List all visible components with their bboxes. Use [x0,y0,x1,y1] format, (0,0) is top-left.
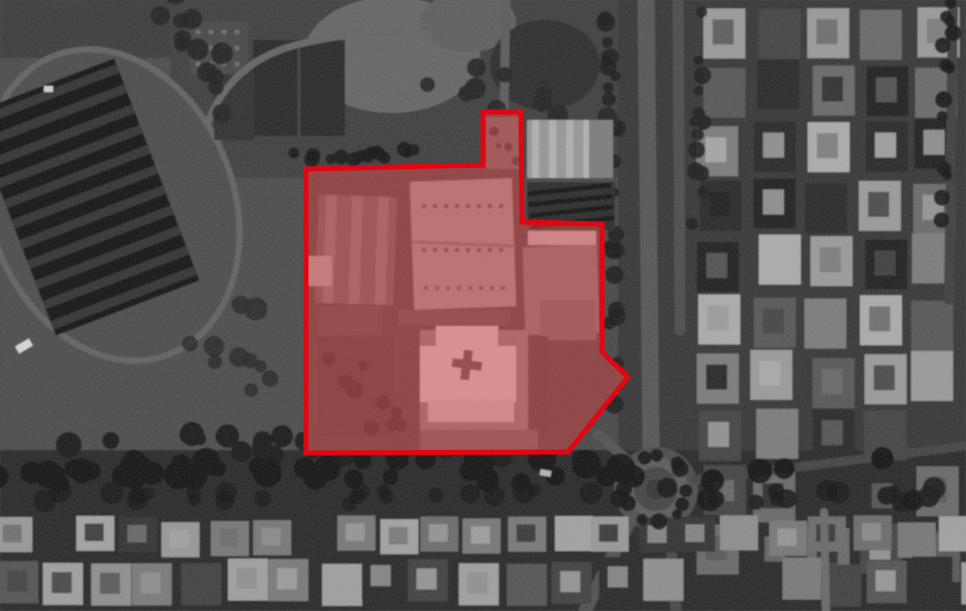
satellite-canvas [0,0,966,611]
satellite-screenshot [0,0,966,611]
